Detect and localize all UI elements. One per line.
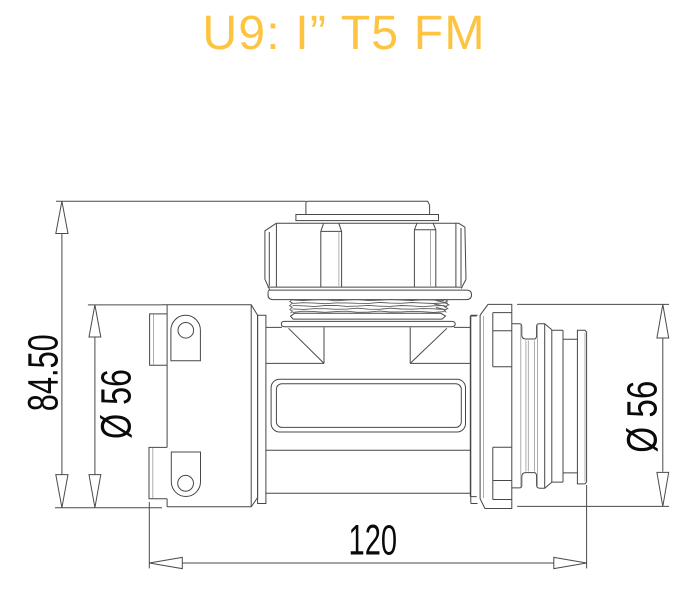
svg-text:U9: I” T5 FM: U9: I” T5 FM: [202, 6, 485, 60]
svg-text:84.50: 84.50: [20, 334, 68, 411]
svg-text:120: 120: [349, 517, 398, 565]
svg-text:Ø 56: Ø 56: [93, 369, 141, 439]
svg-text:Ø 56: Ø 56: [618, 381, 666, 453]
